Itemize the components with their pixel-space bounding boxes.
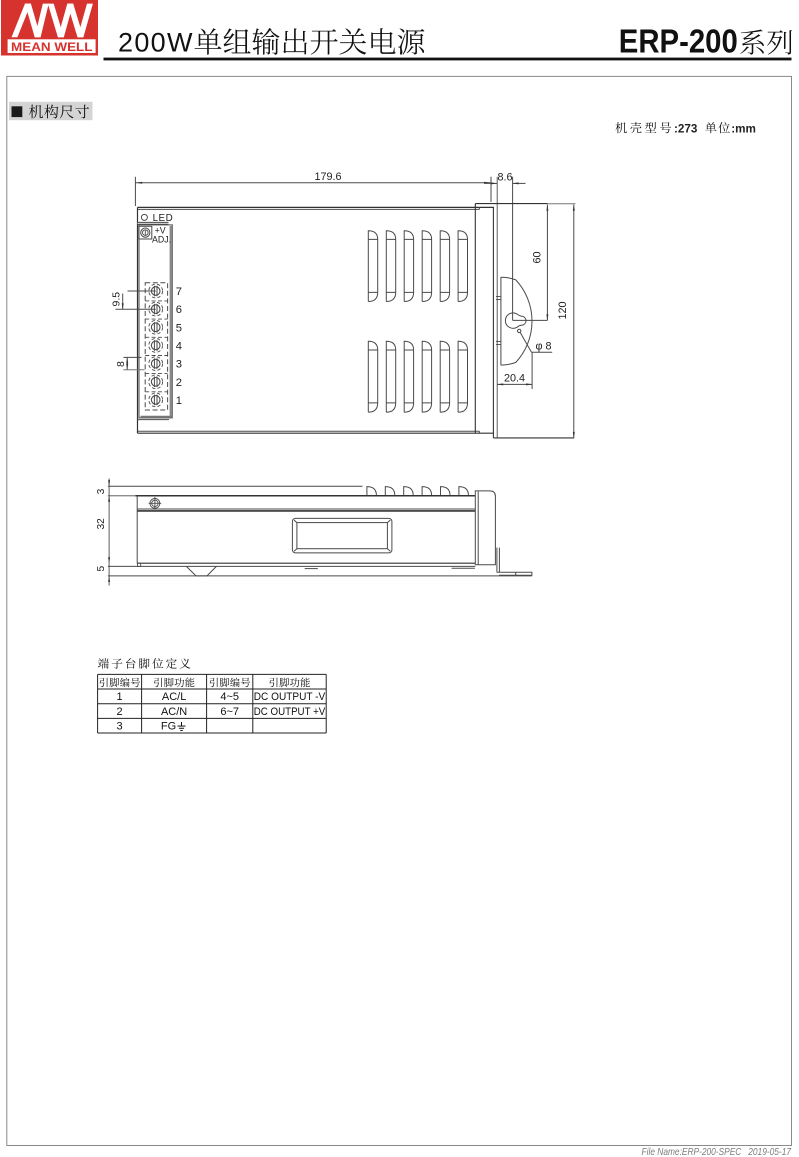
svg-text:DC OUTPUT +V: DC OUTPUT +V xyxy=(254,706,326,718)
svg-text:200W: 200W xyxy=(118,28,194,58)
svg-text:2: 2 xyxy=(117,706,123,718)
svg-text:3: 3 xyxy=(176,359,182,371)
svg-text:8: 8 xyxy=(115,361,127,367)
svg-text:File Name:ERP-200-SPEC 2019-: File Name:ERP-200-SPEC 2019-05-17 xyxy=(642,1147,792,1157)
svg-text:4~5: 4~5 xyxy=(220,691,239,703)
svg-text:AC/N: AC/N xyxy=(161,706,187,718)
svg-text:5: 5 xyxy=(96,566,107,572)
svg-text:AC/L: AC/L xyxy=(162,691,186,703)
svg-text:FG: FG xyxy=(161,721,176,733)
svg-text::mm: :mm xyxy=(731,122,756,135)
svg-text:32: 32 xyxy=(96,518,107,530)
svg-text:60: 60 xyxy=(532,251,544,263)
svg-text:20.4: 20.4 xyxy=(504,373,525,385)
svg-text:6~7: 6~7 xyxy=(220,706,239,718)
svg-text:2: 2 xyxy=(176,377,182,389)
svg-text:1: 1 xyxy=(117,691,123,703)
svg-text:179.6: 179.6 xyxy=(314,171,341,183)
svg-text:ERP-200: ERP-200 xyxy=(619,24,738,61)
svg-text:4: 4 xyxy=(176,341,182,353)
svg-text:ADJ.: ADJ. xyxy=(152,235,171,245)
svg-text:5: 5 xyxy=(176,322,182,334)
svg-text:3: 3 xyxy=(96,488,107,494)
svg-text:φ 8: φ 8 xyxy=(536,341,552,353)
svg-text:6: 6 xyxy=(176,304,182,316)
svg-text:9.5: 9.5 xyxy=(111,292,123,307)
svg-text:3: 3 xyxy=(117,721,123,733)
svg-text:DC OUTPUT -V: DC OUTPUT -V xyxy=(254,691,326,703)
svg-text:8.6: 8.6 xyxy=(497,171,512,183)
svg-text:1: 1 xyxy=(176,395,182,407)
svg-text:120: 120 xyxy=(557,301,569,319)
svg-text::273: :273 xyxy=(674,122,698,135)
svg-text:7: 7 xyxy=(176,286,182,298)
svg-text:MEAN WELL: MEAN WELL xyxy=(11,40,93,54)
